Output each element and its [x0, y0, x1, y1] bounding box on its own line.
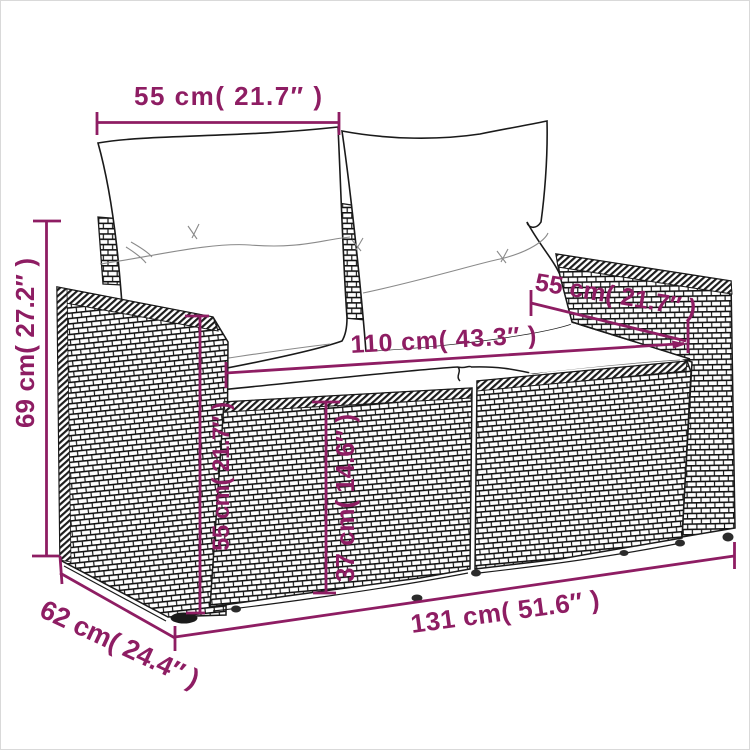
svg-text:37 cm( 14.6″ ): 37 cm( 14.6″ ) — [330, 414, 360, 582]
svg-text:69 cm( 27.2″ ): 69 cm( 27.2″ ) — [10, 258, 40, 428]
svg-text:55 cm( 21.7″ ): 55 cm( 21.7″ ) — [134, 81, 322, 111]
svg-text:55 cm( 21.7″ ): 55 cm( 21.7″ ) — [208, 402, 235, 551]
